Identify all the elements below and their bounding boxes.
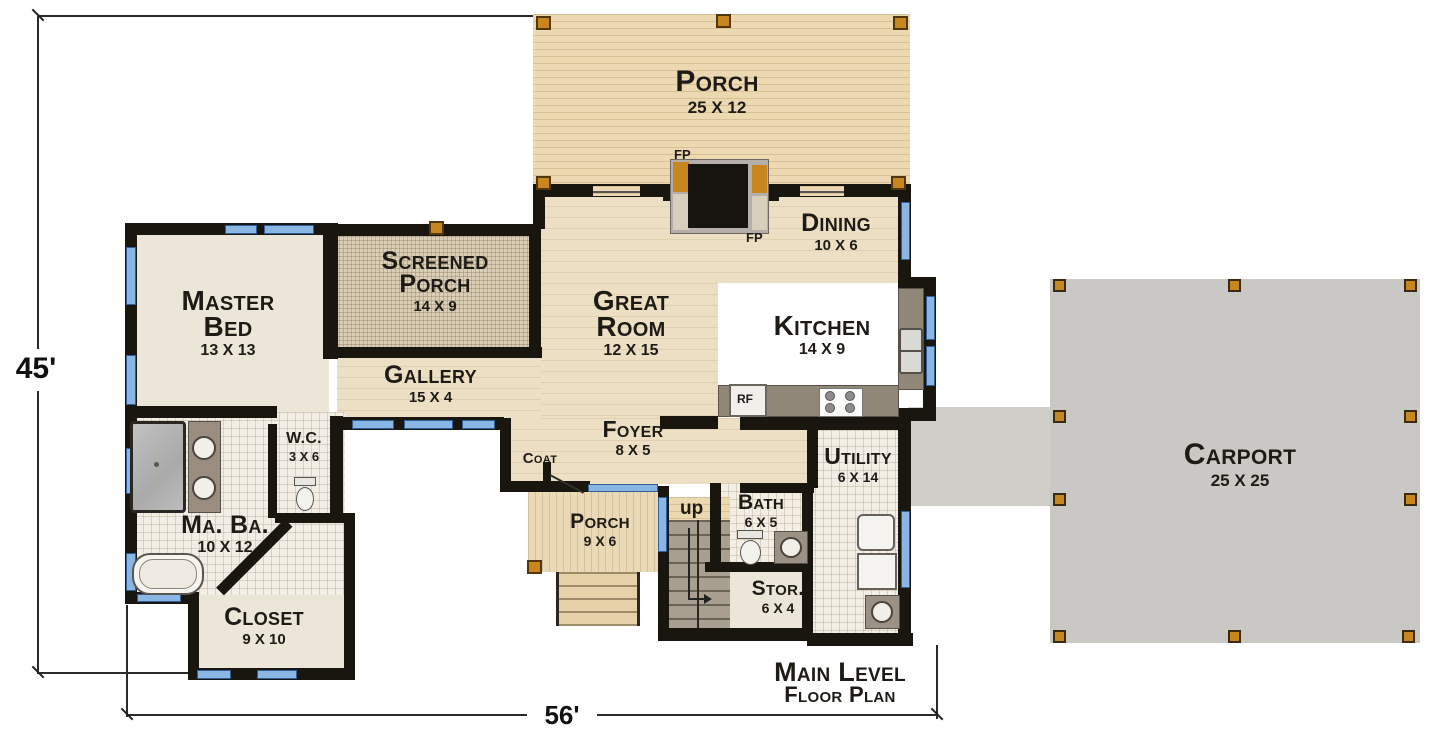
stove-burner — [845, 403, 855, 413]
refrigerator-label: RF — [737, 392, 753, 406]
dimension-line-bottom-left — [127, 714, 527, 716]
shower — [130, 421, 186, 513]
room-label-carport: Carport25 X 25 — [1155, 441, 1325, 491]
stove-burner — [825, 403, 835, 413]
fireplace-corner — [752, 196, 767, 230]
post — [536, 16, 551, 30]
window — [257, 670, 297, 679]
toilet-wc-bowl — [296, 487, 314, 511]
window — [901, 202, 910, 260]
carport-post — [1228, 279, 1241, 292]
carport-post — [1404, 279, 1417, 292]
vanity-sink — [192, 476, 216, 500]
door-sill — [593, 191, 640, 193]
wall — [323, 223, 338, 359]
carport-walkway — [908, 407, 1053, 506]
room-label-gallery: Gallery15 X 4 — [368, 364, 493, 406]
wall — [344, 513, 355, 680]
window — [404, 420, 453, 429]
window — [126, 355, 136, 405]
wall — [125, 406, 277, 418]
fireplace-label-bottom: FP — [746, 230, 763, 245]
door-frame — [588, 484, 658, 492]
stove-burner — [825, 391, 835, 401]
toilet-wc — [294, 477, 316, 486]
dimension-label-45: 45' — [6, 352, 66, 386]
room-label-utility: Utility6 X 14 — [806, 446, 910, 485]
porch-steps — [556, 572, 640, 626]
room-label-foyer: Foyer8 X 5 — [593, 419, 673, 459]
dimension-ext-56-left — [126, 605, 128, 717]
window — [126, 247, 136, 305]
room-label-screened-porch: Screened Porch14 X 9 — [370, 250, 500, 315]
dimension-ext-56-right — [936, 645, 938, 719]
wall — [328, 347, 542, 358]
fireplace — [670, 159, 769, 234]
stair-arrow-head — [704, 594, 712, 604]
post — [429, 221, 444, 235]
bath-sink-basin — [780, 537, 802, 558]
fireplace-label-top: FP — [674, 147, 691, 162]
window — [462, 420, 495, 429]
wall — [807, 633, 913, 646]
room-label-great-room: Great Room12 X 15 — [569, 288, 693, 360]
wall — [740, 416, 910, 430]
wall — [710, 483, 721, 572]
fireplace-corner — [673, 194, 689, 230]
post — [536, 176, 551, 190]
stair-rail — [697, 520, 699, 630]
wall — [529, 224, 541, 358]
stair-arrow-line — [688, 528, 690, 600]
wall — [188, 592, 199, 680]
plan-title: Main Level Floor Plan — [750, 660, 930, 705]
shower-drain — [154, 462, 159, 467]
carport-post — [1404, 410, 1417, 423]
room-label-ma-ba: Ma. Ba.10 X 12 — [163, 514, 287, 557]
fireplace-corner — [752, 165, 767, 193]
floor-plan: 45' 56' — [0, 0, 1440, 744]
carport-post — [1053, 279, 1066, 292]
room-label-dining: Dining10 X 6 — [776, 212, 896, 254]
fireplace-firebox — [688, 164, 748, 228]
window — [926, 296, 935, 340]
kitchen-sink-divider — [901, 350, 921, 352]
window — [352, 420, 394, 429]
stair-arrow-line — [688, 598, 704, 600]
stove-burner — [845, 391, 855, 401]
room-label-master-bed: Master Bed13 X 13 — [168, 288, 288, 360]
window — [197, 670, 231, 679]
carport-post — [1053, 630, 1066, 643]
vanity-sink — [192, 436, 216, 460]
toilet-bath-bowl — [740, 540, 761, 565]
room-label-porch-top: Porch25 X 12 — [617, 68, 817, 118]
dimension-line-top — [38, 15, 534, 17]
room-label-kitchen: Kitchen14 X 9 — [752, 313, 892, 359]
carport-post — [1053, 493, 1066, 506]
window — [225, 225, 257, 234]
room-label-stor: Stor.6 X 4 — [732, 579, 824, 616]
dimension-label-56: 56' — [527, 700, 597, 731]
utility-sink-basin — [871, 601, 893, 623]
window — [901, 511, 910, 588]
carport-post — [1402, 630, 1415, 643]
dryer — [857, 553, 897, 590]
dimension-line-bottom-right — [597, 714, 938, 716]
room-label-coat: Coat — [512, 452, 568, 466]
fireplace-corner — [673, 162, 689, 192]
carport-post — [1404, 493, 1417, 506]
carport-post — [1228, 630, 1241, 643]
window — [264, 225, 314, 234]
dimension-line-left-upper — [37, 16, 39, 349]
room-label-closet: Closet9 X 10 — [202, 606, 326, 648]
dimension-line-left-lower — [37, 391, 39, 674]
wall — [533, 184, 545, 229]
window — [926, 346, 935, 386]
washer — [857, 514, 895, 551]
door-frame — [658, 497, 667, 552]
carport-post — [1053, 410, 1066, 423]
post — [893, 16, 908, 30]
room-label-porch-bottom: Porch9 X 6 — [560, 512, 640, 549]
room-label-wc: W.C.3 X 6 — [278, 432, 330, 464]
wall — [330, 416, 343, 523]
room-label-bath: Bath6 X 5 — [722, 493, 800, 530]
wall — [268, 424, 277, 518]
post — [527, 560, 542, 574]
stairs-up-label: up — [680, 498, 703, 520]
window — [137, 594, 181, 602]
post — [716, 14, 731, 28]
toilet-bath — [737, 530, 763, 539]
door-sill — [800, 191, 844, 193]
dimension-ext-bottomleft — [38, 672, 191, 674]
bathtub-basin — [139, 559, 197, 589]
wall — [658, 628, 812, 641]
post — [891, 176, 906, 190]
